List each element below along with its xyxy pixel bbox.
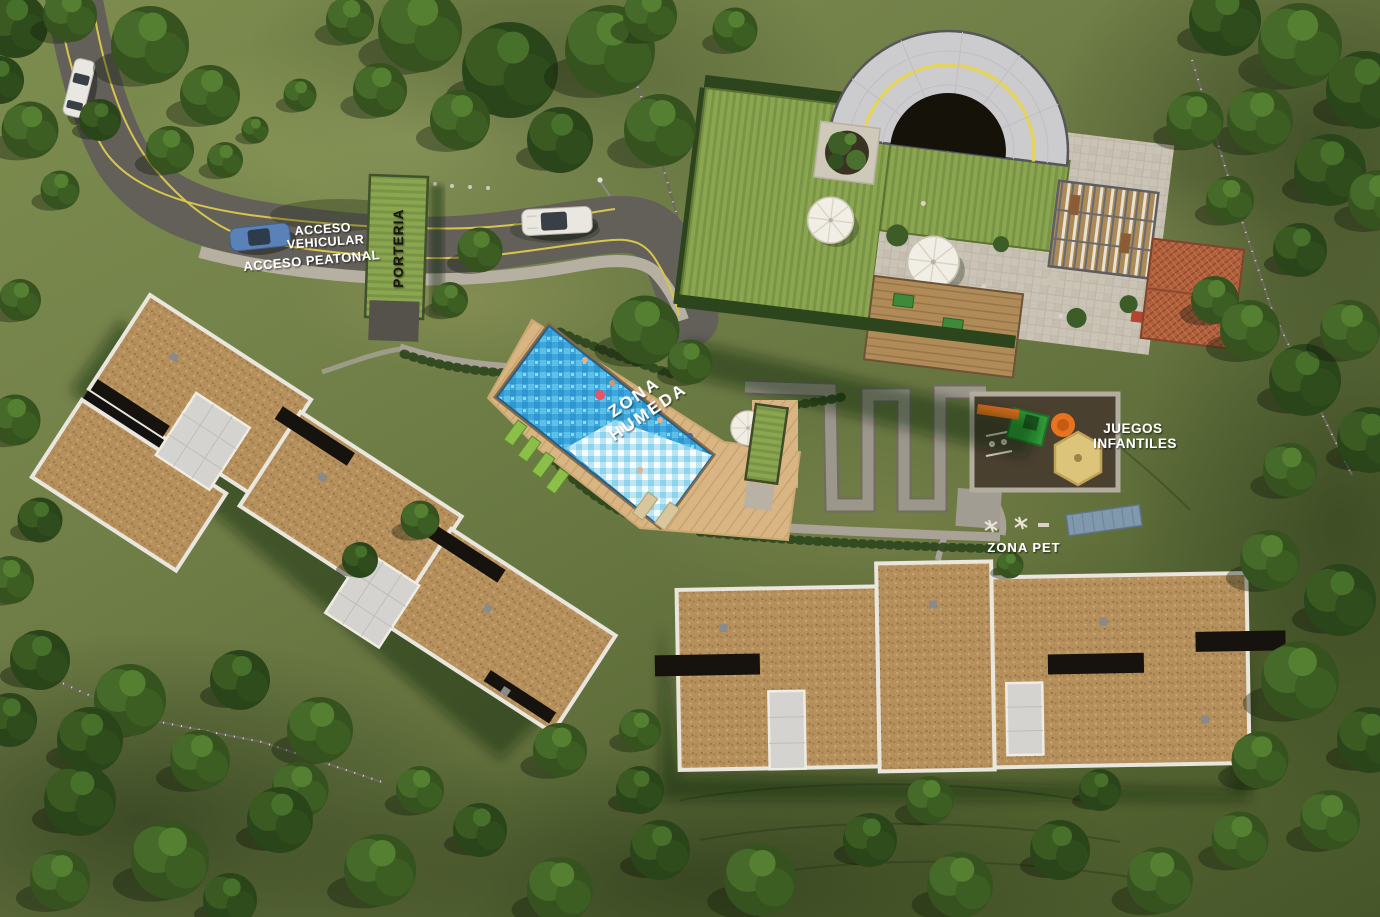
site-plan-drawing: ACCESO VEHICULAR ACCESO PEATONAL PORTERI… [0, 0, 1380, 917]
tree [0, 56, 24, 104]
tree [416, 90, 490, 152]
tree [276, 79, 317, 113]
tree [156, 730, 230, 792]
tree [1112, 847, 1193, 915]
pet-bench [1038, 523, 1049, 527]
tree [0, 279, 41, 322]
tree [1153, 92, 1223, 151]
tree [702, 8, 758, 55]
tree [1177, 0, 1261, 56]
tree [516, 107, 593, 173]
label-porteria: PORTERIA [391, 208, 406, 287]
tree [607, 94, 696, 168]
tree [358, 0, 462, 75]
tree [444, 803, 507, 857]
tree [1195, 176, 1254, 226]
porteria-canopy [368, 300, 419, 342]
tree [0, 395, 41, 448]
tree [608, 766, 664, 814]
tree [315, 0, 374, 46]
tree [113, 821, 209, 902]
tree [0, 693, 37, 747]
label-juegos-infantiles: JUEGOS INFANTILES [1093, 421, 1177, 451]
tree [834, 813, 897, 867]
tree [200, 650, 270, 710]
tree [594, 296, 679, 367]
site-plan: ACCESO VEHICULAR ACCESO PEATONAL PORTERI… [0, 0, 1380, 917]
building-b [653, 556, 1288, 775]
tree [609, 709, 661, 752]
tree [1020, 820, 1090, 880]
tree [166, 65, 240, 127]
tree [340, 63, 407, 119]
tree [272, 697, 353, 765]
tree [1198, 812, 1268, 871]
tree [0, 630, 70, 690]
tree [1243, 641, 1339, 722]
clubhouse [669, 1, 1266, 404]
tree [1212, 87, 1293, 155]
tree [236, 787, 313, 853]
tree [1306, 300, 1380, 362]
dog-jump [1015, 517, 1027, 529]
tree [10, 498, 63, 543]
tree [1292, 564, 1376, 636]
tree [46, 707, 123, 773]
tree [0, 556, 34, 606]
tree [707, 844, 796, 917]
tree [31, 171, 79, 211]
tree [1226, 530, 1300, 592]
label-acceso-vehicular: ACCESO VEHICULAR [286, 219, 365, 251]
tree [0, 102, 59, 161]
tree [520, 723, 587, 779]
tree [1264, 223, 1327, 277]
tree [1072, 769, 1121, 811]
tree [385, 766, 444, 816]
tree [512, 857, 593, 917]
label-zona-pet: ZONA PET [987, 540, 1060, 555]
tree [32, 764, 116, 836]
tree [990, 552, 1023, 580]
tree [1250, 443, 1317, 499]
street-lamp [597, 177, 610, 196]
tree [235, 117, 268, 145]
tree [1326, 707, 1380, 773]
tree [1286, 790, 1360, 852]
tree [16, 850, 90, 912]
plaza-planter [814, 121, 880, 184]
dog-ramp-blue [1066, 505, 1142, 536]
pet-zone-equipment [985, 505, 1142, 536]
tree [620, 820, 690, 880]
tree [199, 142, 243, 179]
tree [327, 834, 416, 908]
pergola [1049, 181, 1159, 279]
